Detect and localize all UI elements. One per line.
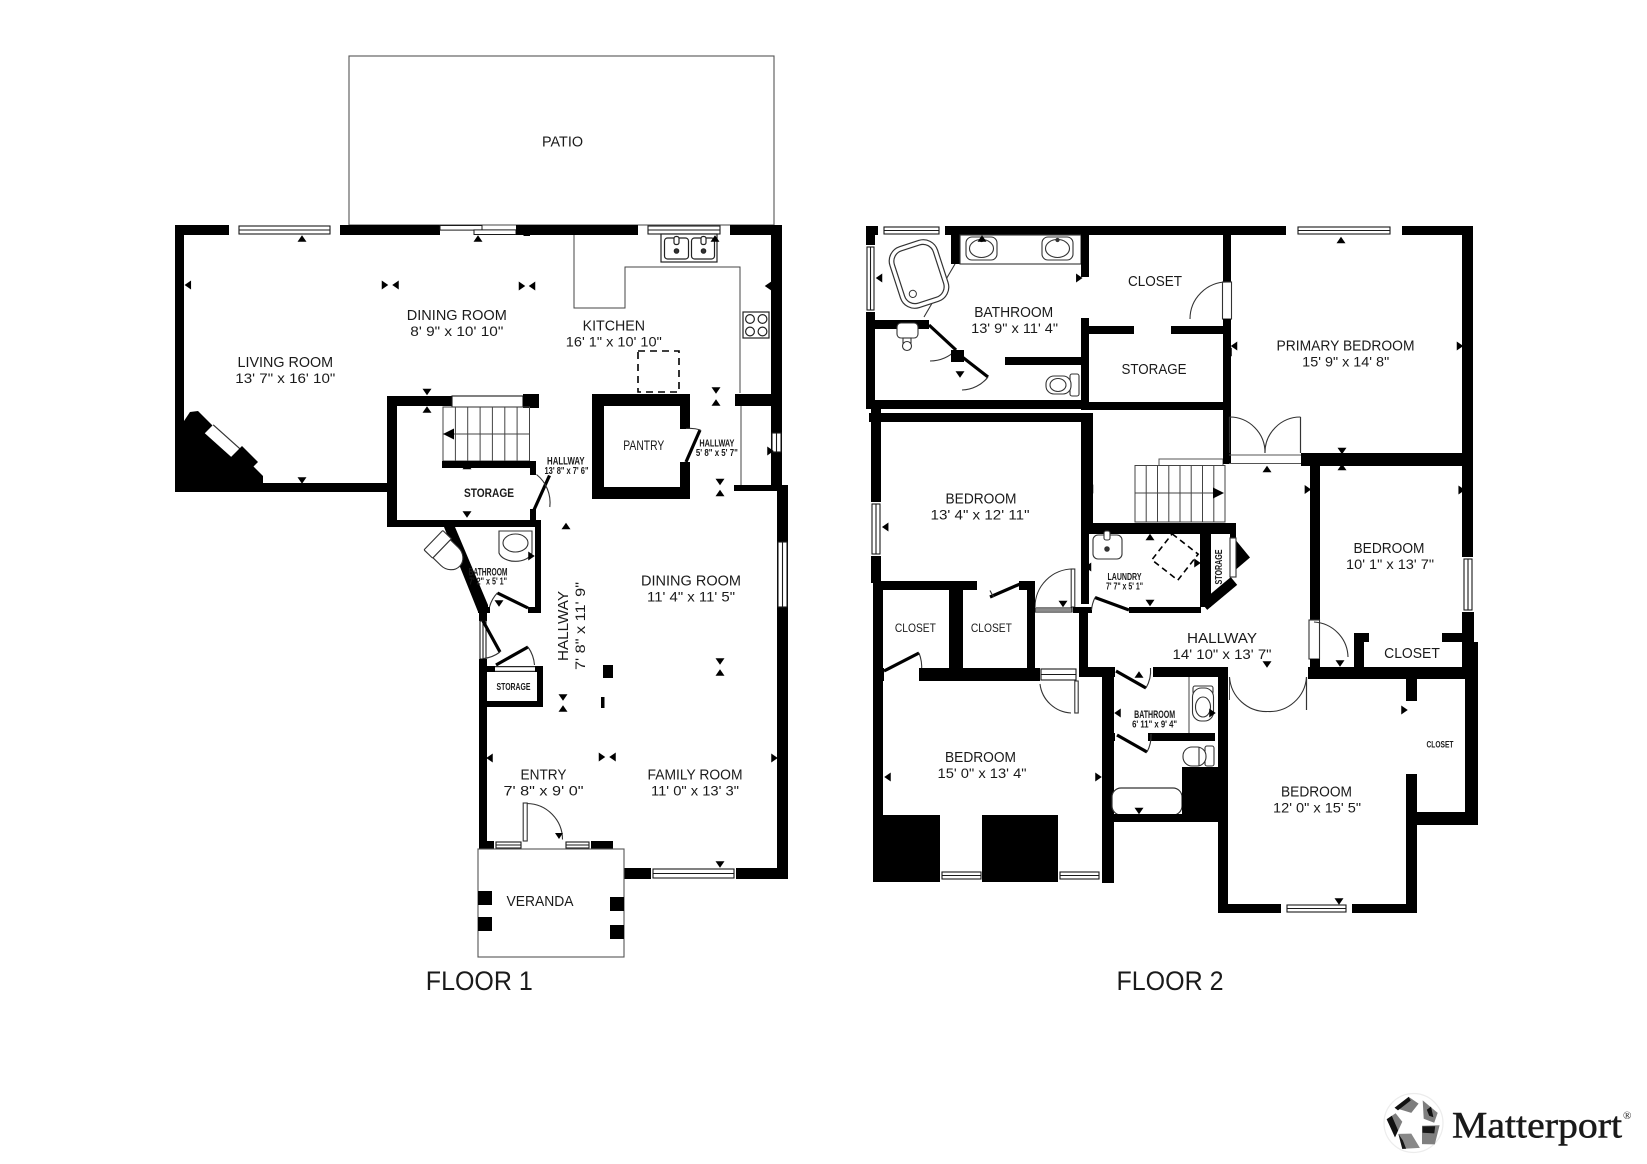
svg-text:STORAGE: STORAGE bbox=[497, 682, 531, 693]
svg-text:12' 0" x 15' 5": 12' 0" x 15' 5" bbox=[1273, 799, 1361, 815]
svg-text:HALLWAY: HALLWAY bbox=[1187, 630, 1257, 647]
svg-text:11' 4" x 11' 5": 11' 4" x 11' 5" bbox=[647, 589, 735, 605]
svg-text:BEDROOM: BEDROOM bbox=[1281, 784, 1352, 801]
svg-text:PATIO: PATIO bbox=[542, 134, 583, 151]
svg-text:13' 9" x 11' 4": 13' 9" x 11' 4" bbox=[971, 320, 1058, 336]
svg-text:6' 11" x 9' 4": 6' 11" x 9' 4" bbox=[1132, 720, 1177, 731]
svg-text:8' 9" x 10' 10": 8' 9" x 10' 10" bbox=[410, 323, 503, 339]
svg-text:7' 8" x 11' 9": 7' 8" x 11' 9" bbox=[572, 582, 588, 670]
svg-text:CLOSET: CLOSET bbox=[971, 621, 1013, 635]
svg-text:13' 4" x 12' 11": 13' 4" x 12' 11" bbox=[931, 506, 1030, 522]
svg-text:11' 0" x 13' 3": 11' 0" x 13' 3" bbox=[651, 783, 739, 799]
svg-text:Matterport: Matterport bbox=[1452, 1106, 1623, 1147]
svg-text:STORAGE: STORAGE bbox=[464, 486, 514, 500]
svg-text:®: ® bbox=[1623, 1110, 1631, 1122]
svg-text:FLOOR 2: FLOOR 2 bbox=[1117, 966, 1224, 996]
svg-text:LIVING ROOM: LIVING ROOM bbox=[238, 354, 334, 371]
svg-text:13' 8" x 7' 6": 13' 8" x 7' 6" bbox=[545, 466, 589, 477]
svg-text:ENTRY: ENTRY bbox=[521, 767, 567, 784]
svg-text:STORAGE: STORAGE bbox=[1213, 550, 1225, 585]
svg-text:FLOOR 1: FLOOR 1 bbox=[426, 966, 533, 996]
svg-text:CLOSET: CLOSET bbox=[1128, 273, 1182, 290]
svg-text:KITCHEN: KITCHEN bbox=[583, 318, 645, 335]
svg-text:FAMILY ROOM: FAMILY ROOM bbox=[648, 767, 743, 784]
svg-text:15' 0" x 13' 4": 15' 0" x 13' 4" bbox=[938, 765, 1027, 781]
svg-text:PRIMARY BEDROOM: PRIMARY BEDROOM bbox=[1277, 337, 1415, 354]
svg-text:CLOSET: CLOSET bbox=[1427, 740, 1454, 750]
svg-text:CLOSET: CLOSET bbox=[1384, 645, 1440, 662]
svg-text:DINING ROOM: DINING ROOM bbox=[641, 573, 741, 590]
svg-text:VERANDA: VERANDA bbox=[507, 893, 574, 910]
svg-text:7' 8" x 9' 0": 7' 8" x 9' 0" bbox=[504, 783, 584, 799]
svg-text:BEDROOM: BEDROOM bbox=[946, 490, 1017, 507]
svg-text:15' 9" x 14' 8": 15' 9" x 14' 8" bbox=[1302, 353, 1389, 369]
svg-text:BEDROOM: BEDROOM bbox=[945, 749, 1016, 766]
svg-text:7' 7" x 5' 1": 7' 7" x 5' 1" bbox=[1106, 582, 1143, 593]
svg-text:DINING ROOM: DINING ROOM bbox=[407, 307, 507, 324]
svg-text:STORAGE: STORAGE bbox=[1122, 361, 1187, 378]
svg-text:PANTRY: PANTRY bbox=[623, 438, 664, 453]
svg-text:HALLWAY: HALLWAY bbox=[555, 591, 572, 661]
svg-text:7' 2" x 5' 1": 7' 2" x 5' 1" bbox=[469, 577, 507, 588]
svg-text:5' 8" x 5' 7": 5' 8" x 5' 7" bbox=[696, 448, 738, 459]
svg-text:14' 10" x 13' 7": 14' 10" x 13' 7" bbox=[1173, 646, 1272, 662]
svg-text:CLOSET: CLOSET bbox=[895, 621, 937, 635]
svg-text:10' 1" x 13' 7": 10' 1" x 13' 7" bbox=[1346, 556, 1434, 572]
svg-text:13' 7" x 16' 10": 13' 7" x 16' 10" bbox=[235, 370, 335, 386]
svg-text:16' 1" x 10' 10": 16' 1" x 10' 10" bbox=[566, 334, 662, 350]
svg-text:BATHROOM: BATHROOM bbox=[974, 304, 1053, 321]
svg-text:BEDROOM: BEDROOM bbox=[1354, 540, 1425, 557]
